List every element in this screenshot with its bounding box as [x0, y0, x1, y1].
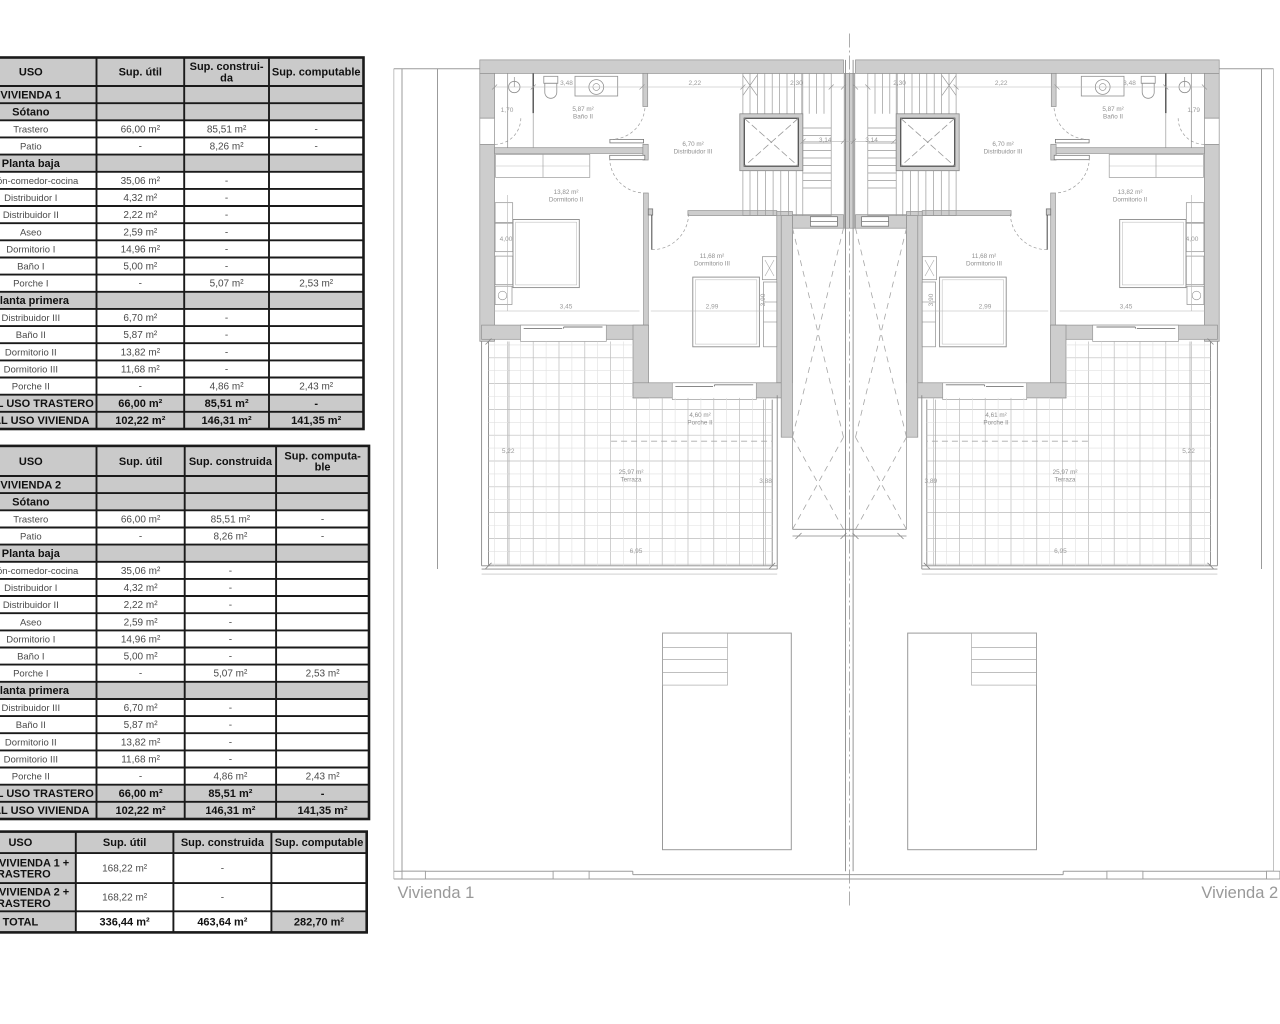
- svg-text:Aseo: Aseo: [20, 617, 42, 628]
- svg-text:Dormitorio III: Dormitorio III: [4, 755, 58, 766]
- svg-text:4,61 m²: 4,61 m²: [985, 412, 1006, 419]
- svg-text:Distribuidor I: Distribuidor I: [4, 193, 57, 204]
- svg-text:-: -: [225, 365, 228, 376]
- svg-text:1,79: 1,79: [1187, 107, 1200, 114]
- svg-text:3,45: 3,45: [560, 304, 573, 311]
- svg-text:3,88: 3,88: [759, 478, 772, 485]
- svg-text:2,30: 2,30: [790, 80, 803, 87]
- svg-text:Distribuidor III: Distribuidor III: [1, 703, 60, 714]
- svg-text:Trastero: Trastero: [13, 514, 48, 525]
- svg-text:5,87 m²: 5,87 m²: [572, 106, 593, 113]
- svg-text:Sup. útil: Sup. útil: [119, 456, 162, 468]
- svg-text:6,70 m²: 6,70 m²: [124, 703, 159, 714]
- svg-text:8,26 m²: 8,26 m²: [210, 142, 245, 153]
- svg-text:Terraza: Terraza: [1055, 477, 1076, 484]
- svg-text:-: -: [229, 737, 232, 748]
- svg-text:2,22: 2,22: [995, 80, 1008, 87]
- svg-text:-: -: [139, 772, 142, 783]
- svg-text:Baño II: Baño II: [16, 720, 46, 731]
- svg-text:Baño II: Baño II: [573, 114, 593, 121]
- svg-text:-: -: [229, 703, 232, 714]
- svg-text:Trastero: Trastero: [13, 124, 48, 135]
- svg-text:Distribuidor III: Distribuidor III: [674, 149, 713, 156]
- svg-text:2,22: 2,22: [688, 80, 701, 87]
- svg-text:-: -: [139, 382, 142, 393]
- svg-text:Porche I: Porche I: [13, 279, 48, 290]
- svg-text:5,07 m²: 5,07 m²: [213, 669, 248, 680]
- svg-text:11,68 m²: 11,68 m²: [700, 253, 724, 260]
- svg-text:-: -: [229, 652, 232, 663]
- svg-text:25,97 m²: 25,97 m²: [1053, 469, 1078, 476]
- svg-text:-: -: [221, 893, 224, 904]
- svg-text:Dormitorio III: Dormitorio III: [966, 261, 1002, 268]
- svg-text:-: -: [225, 176, 228, 187]
- svg-text:VIVIENDA 2: VIVIENDA 2: [0, 479, 61, 491]
- svg-text:66,00 m²: 66,00 m²: [121, 514, 161, 525]
- svg-text:2,22 m²: 2,22 m²: [124, 600, 159, 611]
- svg-text:Sup. útil: Sup. útil: [103, 837, 146, 849]
- svg-text:Sup. computable: Sup. computable: [272, 67, 361, 79]
- svg-text:Dormitorio II: Dormitorio II: [1113, 197, 1148, 204]
- svg-text:3,45: 3,45: [1120, 304, 1133, 311]
- svg-text:-: -: [321, 788, 325, 800]
- svg-text:85,51 m²: 85,51 m²: [205, 398, 249, 410]
- svg-text:11,68 m²: 11,68 m²: [121, 755, 160, 766]
- svg-text:USO: USO: [8, 837, 32, 849]
- svg-text:Terraza: Terraza: [621, 477, 642, 484]
- svg-text:5,87 m²: 5,87 m²: [123, 330, 158, 341]
- svg-text:4,32 m²: 4,32 m²: [124, 583, 159, 594]
- svg-text:463,64 m²: 463,64 m²: [197, 917, 247, 929]
- svg-text:Vivienda 2: Vivienda 2: [1201, 884, 1278, 902]
- svg-text:Patio: Patio: [20, 142, 42, 153]
- svg-text:5,87 m²: 5,87 m²: [124, 720, 159, 731]
- svg-text:-: -: [225, 227, 228, 238]
- svg-text:-: -: [229, 617, 232, 628]
- svg-text:Planta primera: Planta primera: [0, 685, 70, 697]
- svg-text:Sup. computable: Sup. computable: [275, 837, 364, 849]
- svg-text:168,22 m²: 168,22 m²: [102, 864, 148, 875]
- svg-text:-: -: [225, 313, 228, 324]
- svg-text:5,00 m²: 5,00 m²: [123, 262, 158, 273]
- svg-text:TOTAL USO TRASTERO: TOTAL USO TRASTERO: [0, 788, 94, 800]
- svg-text:85,51 m²: 85,51 m²: [211, 514, 251, 525]
- svg-text:1,70: 1,70: [501, 107, 514, 114]
- svg-text:Dormitorio II: Dormitorio II: [5, 347, 57, 358]
- svg-text:-: -: [229, 600, 232, 611]
- svg-text:TRASTERO: TRASTERO: [0, 898, 51, 910]
- svg-text:-: -: [139, 142, 142, 153]
- svg-text:-: -: [225, 210, 228, 221]
- svg-text:Distribuidor I: Distribuidor I: [4, 583, 57, 594]
- svg-text:85,51 m²: 85,51 m²: [207, 124, 247, 135]
- svg-text:SUP. VIVIENDA 1 +: SUP. VIVIENDA 1 +: [0, 857, 69, 869]
- svg-text:Dormitorio II: Dormitorio II: [549, 197, 584, 204]
- svg-text:Planta baja: Planta baja: [2, 548, 61, 560]
- svg-text:Sótano: Sótano: [12, 497, 50, 509]
- svg-text:102,22 m²: 102,22 m²: [115, 415, 165, 427]
- svg-text:3,14: 3,14: [819, 137, 832, 144]
- svg-text:Distribuidor III: Distribuidor III: [984, 149, 1023, 156]
- svg-text:3,14: 3,14: [865, 137, 878, 144]
- svg-text:6,95: 6,95: [1054, 548, 1067, 555]
- svg-text:146,31 m²: 146,31 m²: [202, 415, 252, 427]
- svg-text:146,31 m²: 146,31 m²: [205, 805, 255, 817]
- svg-text:4,86 m²: 4,86 m²: [213, 772, 248, 783]
- svg-text:4,32 m²: 4,32 m²: [123, 193, 158, 204]
- svg-text:35,06 m²: 35,06 m²: [121, 566, 161, 577]
- svg-text:13,82 m²: 13,82 m²: [554, 189, 579, 196]
- svg-text:Dormitorio I: Dormitorio I: [6, 634, 55, 645]
- svg-text:Distribuidor II: Distribuidor II: [3, 600, 59, 611]
- svg-text:ble: ble: [315, 462, 331, 474]
- svg-text:Planta baja: Planta baja: [2, 158, 61, 170]
- svg-text:Porche II: Porche II: [687, 420, 712, 427]
- svg-text:-: -: [139, 279, 142, 290]
- svg-text:6,70 m²: 6,70 m²: [682, 141, 703, 148]
- svg-text:VIVIENDA 1: VIVIENDA 1: [0, 89, 61, 101]
- svg-text:13,82 m²: 13,82 m²: [121, 737, 161, 748]
- svg-text:TOTAL USO TRASTERO: TOTAL USO TRASTERO: [0, 398, 94, 410]
- svg-text:Sup. construida: Sup. construida: [189, 456, 273, 468]
- svg-text:Porche II: Porche II: [12, 772, 50, 783]
- svg-text:3,90: 3,90: [760, 293, 767, 306]
- svg-text:141,35 m²: 141,35 m²: [291, 415, 341, 427]
- svg-text:-: -: [229, 566, 232, 577]
- svg-text:-: -: [315, 142, 318, 153]
- svg-text:-: -: [229, 720, 232, 731]
- svg-text:4,60 m²: 4,60 m²: [689, 412, 710, 419]
- svg-text:6,70 m²: 6,70 m²: [123, 313, 158, 324]
- svg-text:Distribuidor III: Distribuidor III: [1, 313, 60, 324]
- svg-text:Sup. útil: Sup. útil: [119, 67, 162, 79]
- svg-text:4,00: 4,00: [500, 236, 513, 243]
- svg-text:25,97 m²: 25,97 m²: [619, 469, 644, 476]
- svg-text:3,90: 3,90: [928, 293, 935, 306]
- svg-text:-: -: [139, 669, 142, 680]
- svg-text:6,70 m²: 6,70 m²: [992, 141, 1013, 148]
- svg-text:-: -: [321, 532, 324, 543]
- svg-text:6,95: 6,95: [630, 548, 643, 555]
- svg-text:Baño II: Baño II: [16, 330, 46, 341]
- svg-text:Sup. computa-: Sup. computa-: [284, 450, 361, 462]
- svg-text:2,59 m²: 2,59 m²: [123, 227, 158, 238]
- svg-text:2,53 m²: 2,53 m²: [299, 279, 334, 290]
- svg-text:-: -: [221, 864, 224, 875]
- svg-text:USO: USO: [19, 67, 43, 79]
- svg-text:4,86 m²: 4,86 m²: [210, 382, 245, 393]
- svg-text:5,00 m²: 5,00 m²: [124, 652, 159, 663]
- svg-text:USO: USO: [19, 456, 43, 468]
- svg-text:Patio: Patio: [20, 532, 42, 543]
- svg-text:TRASTERO: TRASTERO: [0, 869, 51, 881]
- svg-text:da: da: [220, 72, 234, 84]
- svg-text:282,70 m²: 282,70 m²: [294, 917, 344, 929]
- svg-text:2,99: 2,99: [706, 304, 719, 311]
- svg-text:336,44 m²: 336,44 m²: [100, 917, 150, 929]
- svg-text:Baño II: Baño II: [1103, 114, 1123, 121]
- svg-text:5,22: 5,22: [502, 448, 515, 455]
- svg-text:13,82 m²: 13,82 m²: [1118, 189, 1143, 196]
- svg-text:TOTAL USO VIVIENDA: TOTAL USO VIVIENDA: [0, 805, 90, 817]
- svg-text:14,96 m²: 14,96 m²: [121, 634, 161, 645]
- svg-text:Sup. construida: Sup. construida: [181, 837, 265, 849]
- svg-text:Porche I: Porche I: [13, 669, 48, 680]
- svg-text:-: -: [139, 532, 142, 543]
- svg-text:168,22 m²: 168,22 m²: [102, 893, 148, 904]
- svg-text:Sótano: Sótano: [12, 107, 50, 119]
- svg-text:Dormitorio III: Dormitorio III: [694, 261, 730, 268]
- svg-text:-: -: [321, 514, 324, 525]
- svg-text:2,43 m²: 2,43 m²: [306, 772, 341, 783]
- svg-text:141,35 m²: 141,35 m²: [298, 805, 348, 817]
- svg-text:-: -: [229, 583, 232, 594]
- svg-text:66,00 m²: 66,00 m²: [118, 398, 162, 410]
- svg-text:3,48: 3,48: [1123, 80, 1136, 87]
- svg-text:2,43 m²: 2,43 m²: [299, 382, 334, 393]
- svg-text:TOTAL: TOTAL: [3, 917, 39, 929]
- svg-text:-: -: [314, 398, 318, 410]
- svg-text:Distribuidor II: Distribuidor II: [3, 210, 59, 221]
- svg-text:2,22 m²: 2,22 m²: [123, 210, 158, 221]
- svg-text:Porche II: Porche II: [983, 420, 1008, 427]
- svg-text:Porche II: Porche II: [12, 382, 50, 393]
- svg-text:Baño I: Baño I: [17, 262, 44, 273]
- svg-text:Salón-comedor-cocina: Salón-comedor-cocina: [0, 566, 79, 577]
- svg-text:11,68 m²: 11,68 m²: [121, 365, 160, 376]
- svg-text:2,99: 2,99: [979, 304, 992, 311]
- svg-text:2,30: 2,30: [893, 80, 906, 87]
- svg-text:-: -: [225, 193, 228, 204]
- svg-text:3,48: 3,48: [560, 80, 573, 87]
- svg-text:5,07 m²: 5,07 m²: [210, 279, 245, 290]
- svg-text:-: -: [229, 634, 232, 645]
- svg-text:11,68 m²: 11,68 m²: [972, 253, 996, 260]
- svg-text:85,51 m²: 85,51 m²: [208, 788, 252, 800]
- svg-text:5,87 m²: 5,87 m²: [1102, 106, 1123, 113]
- svg-text:4,00: 4,00: [1186, 236, 1199, 243]
- svg-text:5,22: 5,22: [1182, 448, 1195, 455]
- svg-text:35,06 m²: 35,06 m²: [121, 176, 161, 187]
- svg-text:Baño I: Baño I: [17, 652, 44, 663]
- svg-text:2,59 m²: 2,59 m²: [124, 617, 159, 628]
- svg-text:SUP. VIVIENDA 2 +: SUP. VIVIENDA 2 +: [0, 886, 69, 898]
- svg-text:Salón-comedor-cocina: Salón-comedor-cocina: [0, 176, 79, 187]
- svg-text:TOTAL USO VIVIENDA: TOTAL USO VIVIENDA: [0, 415, 90, 427]
- svg-text:-: -: [225, 244, 228, 255]
- svg-text:Planta primera: Planta primera: [0, 295, 70, 307]
- svg-text:Dormitorio III: Dormitorio III: [4, 365, 58, 376]
- svg-text:2,53 m²: 2,53 m²: [306, 669, 341, 680]
- svg-text:14,96 m²: 14,96 m²: [121, 244, 161, 255]
- svg-text:3,89: 3,89: [924, 478, 937, 485]
- svg-text:Dormitorio I: Dormitorio I: [6, 244, 55, 255]
- svg-text:Aseo: Aseo: [20, 227, 42, 238]
- svg-text:-: -: [229, 755, 232, 766]
- svg-text:Vivienda 1: Vivienda 1: [398, 884, 475, 902]
- svg-text:-: -: [225, 262, 228, 273]
- svg-text:-: -: [225, 347, 228, 358]
- svg-text:8,26 m²: 8,26 m²: [213, 532, 248, 543]
- svg-text:66,00 m²: 66,00 m²: [121, 124, 161, 135]
- svg-text:13,82 m²: 13,82 m²: [121, 347, 161, 358]
- svg-text:-: -: [225, 330, 228, 341]
- svg-text:66,00 m²: 66,00 m²: [119, 788, 163, 800]
- svg-text:Dormitorio II: Dormitorio II: [5, 737, 57, 748]
- svg-text:102,22 m²: 102,22 m²: [116, 805, 166, 817]
- svg-text:-: -: [315, 124, 318, 135]
